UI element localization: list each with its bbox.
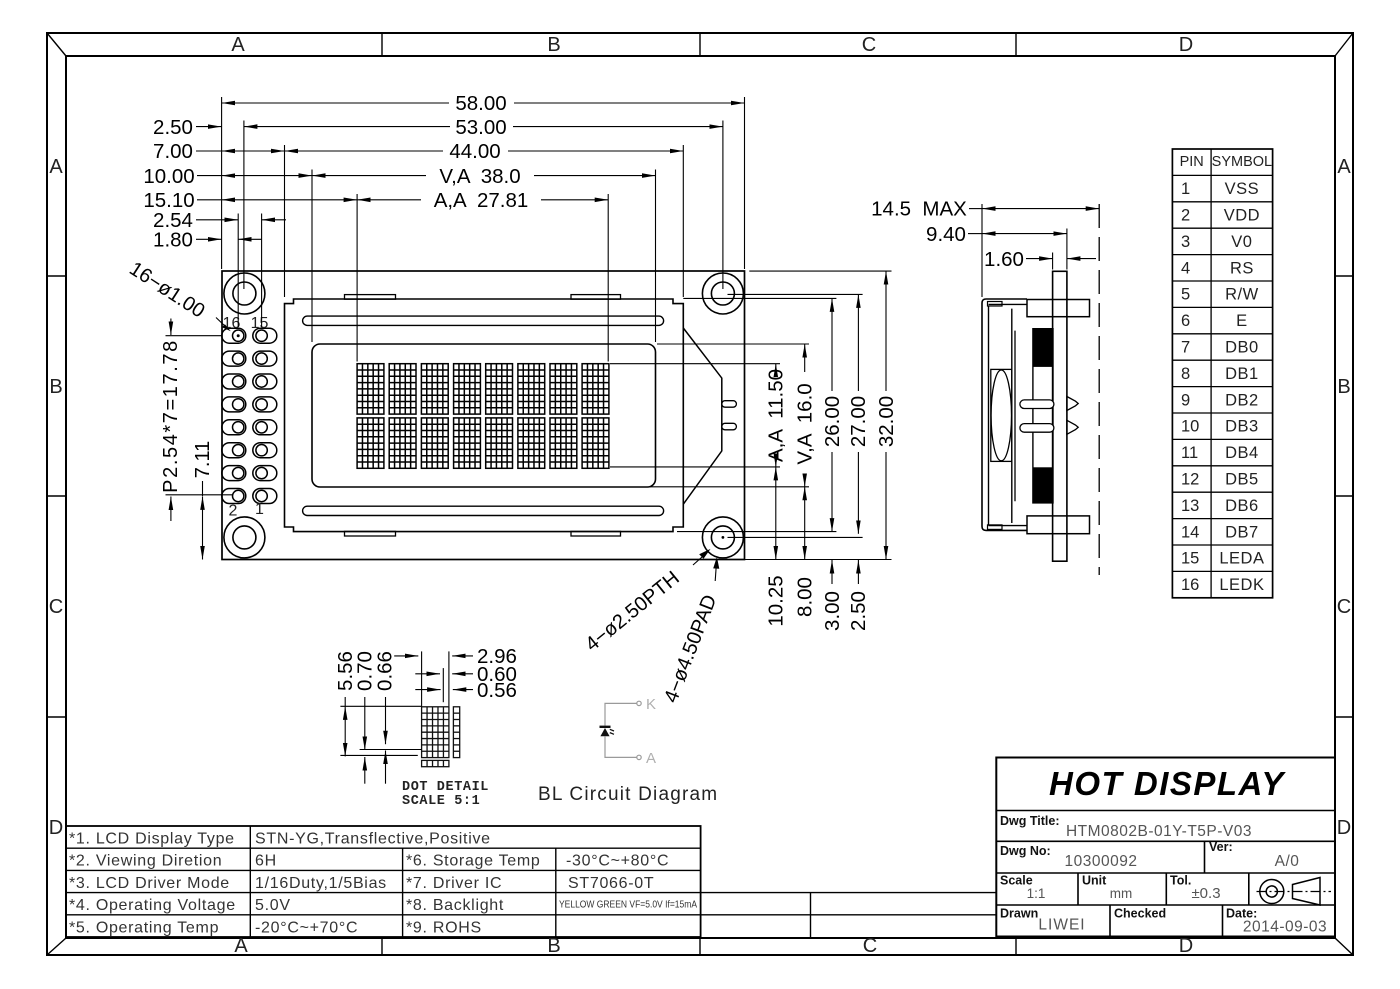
svg-text:-30°C~+80°C: -30°C~+80°C — [566, 853, 669, 870]
svg-text:58.00: 58.00 — [455, 92, 506, 115]
svg-text:*5. Operating Temp: *5. Operating Temp — [69, 919, 219, 936]
svg-text:9: 9 — [1181, 391, 1190, 409]
svg-text:A/0: A/0 — [1275, 853, 1300, 870]
svg-text:SCALE 5:1: SCALE 5:1 — [402, 794, 480, 809]
svg-text:12: 12 — [1181, 471, 1199, 489]
svg-text:2: 2 — [229, 503, 238, 520]
svg-text:14.5 MAX: 14.5 MAX — [871, 198, 967, 221]
svg-text:SYMBOL: SYMBOL — [1212, 154, 1272, 170]
svg-text:1.80: 1.80 — [153, 229, 193, 252]
svg-text:D: D — [1179, 935, 1193, 957]
svg-text:Dwg No:: Dwg No: — [1000, 844, 1051, 858]
svg-text:7: 7 — [1181, 339, 1190, 357]
svg-text:Ver:: Ver: — [1209, 840, 1233, 854]
svg-text:5: 5 — [1181, 286, 1190, 304]
svg-text:5.0V: 5.0V — [255, 897, 291, 914]
svg-text:B: B — [547, 34, 560, 56]
svg-text:14: 14 — [1181, 523, 1199, 541]
svg-text:*3. LCD Driver Mode: *3. LCD Driver Mode — [69, 875, 230, 892]
svg-text:VSS: VSS — [1225, 180, 1260, 198]
svg-text:C: C — [1337, 596, 1351, 618]
svg-text:9.40: 9.40 — [926, 223, 966, 246]
svg-text:C: C — [863, 935, 877, 957]
svg-text:10.25: 10.25 — [765, 575, 788, 626]
svg-text:Checked: Checked — [1114, 907, 1166, 921]
svg-text:A: A — [1337, 156, 1351, 178]
svg-text:RS: RS — [1230, 259, 1254, 277]
svg-text:DB7: DB7 — [1225, 523, 1259, 541]
svg-text:A,A 27.81: A,A 27.81 — [434, 189, 529, 212]
svg-text:0.56: 0.56 — [477, 679, 517, 702]
svg-text:V,A 16.0: V,A 16.0 — [794, 383, 817, 464]
svg-text:0.66: 0.66 — [374, 651, 397, 691]
svg-text:D: D — [1179, 34, 1193, 56]
svg-text:*1. LCD Display Type: *1. LCD Display Type — [69, 831, 235, 848]
svg-text:16: 16 — [1181, 576, 1199, 594]
svg-text:DB3: DB3 — [1225, 418, 1259, 436]
svg-text:P2.54*7=17.78: P2.54*7=17.78 — [160, 339, 182, 493]
svg-text:7.11: 7.11 — [192, 441, 214, 478]
svg-text:V,A 38.0: V,A 38.0 — [439, 165, 520, 188]
svg-text:4: 4 — [1181, 259, 1190, 277]
svg-text:44.00: 44.00 — [449, 140, 500, 163]
svg-text:*2. Viewing Diretion: *2. Viewing Diretion — [69, 853, 222, 870]
svg-text:A: A — [234, 935, 248, 957]
svg-text:LEDK: LEDK — [1219, 576, 1264, 594]
svg-text:DB2: DB2 — [1225, 391, 1259, 409]
svg-text:26.00: 26.00 — [821, 396, 844, 447]
svg-text:DB5: DB5 — [1225, 471, 1259, 489]
svg-text:D: D — [1337, 817, 1351, 839]
svg-text:DB1: DB1 — [1225, 365, 1259, 383]
svg-text:*7. Driver IC: *7. Driver IC — [406, 875, 502, 892]
svg-text:6H: 6H — [255, 853, 277, 870]
svg-text:10.00: 10.00 — [143, 165, 194, 188]
svg-text:13: 13 — [1181, 497, 1199, 515]
svg-text:V0: V0 — [1231, 233, 1252, 251]
svg-text:Dwg Title:: Dwg Title: — [1000, 814, 1060, 828]
svg-text:DOT DETAIL: DOT DETAIL — [402, 780, 489, 795]
svg-text:C: C — [49, 596, 63, 618]
svg-text:*4. Operating Voltage: *4. Operating Voltage — [69, 897, 236, 914]
svg-text:2014-09-03: 2014-09-03 — [1243, 919, 1327, 936]
svg-text:1: 1 — [255, 501, 264, 518]
svg-text:C: C — [862, 34, 876, 56]
svg-text:DB4: DB4 — [1225, 444, 1259, 462]
svg-text:DB6: DB6 — [1225, 497, 1259, 515]
svg-text:HTM0802B-01Y-T5P-V03: HTM0802B-01Y-T5P-V03 — [1066, 823, 1252, 840]
svg-text:10300092: 10300092 — [1065, 853, 1138, 870]
svg-text:8: 8 — [1181, 365, 1190, 383]
svg-text:R/W: R/W — [1225, 286, 1259, 304]
svg-text:*6. Storage Temp: *6. Storage Temp — [406, 853, 541, 870]
svg-text:1.60: 1.60 — [984, 248, 1024, 271]
svg-text:A,A 11.50: A,A 11.50 — [765, 369, 788, 462]
svg-text:LEDA: LEDA — [1219, 550, 1264, 568]
svg-text:15: 15 — [251, 315, 269, 332]
svg-text:LIWEI: LIWEI — [1038, 917, 1085, 934]
svg-text:ST7066-0T: ST7066-0T — [568, 875, 654, 892]
svg-text:A: A — [646, 750, 656, 767]
svg-text:E: E — [1236, 312, 1248, 330]
svg-text:8.00: 8.00 — [794, 577, 817, 617]
svg-text:K: K — [646, 696, 656, 713]
svg-text:1/16Duty,1/5Bias: 1/16Duty,1/5Bias — [255, 875, 387, 892]
svg-text:Tol.: Tol. — [1170, 874, 1191, 888]
svg-text:2: 2 — [1181, 207, 1190, 225]
svg-text:10: 10 — [1181, 418, 1199, 436]
svg-text:BL Circuit Diagram: BL Circuit Diagram — [538, 784, 718, 805]
svg-text:1:1: 1:1 — [1027, 886, 1046, 901]
svg-text:B: B — [1337, 376, 1350, 398]
svg-text:B: B — [547, 935, 560, 957]
svg-text:mm: mm — [1110, 886, 1133, 901]
svg-text:53.00: 53.00 — [455, 116, 506, 139]
svg-text:11: 11 — [1181, 444, 1198, 462]
svg-text:-20°C~+70°C: -20°C~+70°C — [255, 919, 358, 936]
svg-text:B: B — [49, 376, 62, 398]
svg-text:HOT DISPLAY: HOT DISPLAY — [1049, 765, 1286, 802]
svg-text:DB0: DB0 — [1225, 339, 1259, 357]
svg-text:PIN: PIN — [1180, 154, 1204, 170]
svg-text:±0.3: ±0.3 — [1191, 885, 1220, 902]
svg-text:27.00: 27.00 — [847, 396, 870, 447]
svg-text:6: 6 — [1181, 312, 1190, 330]
svg-text:YELLOW GREEN VF=5.0V If=15mA: YELLOW GREEN VF=5.0V If=15mA — [559, 899, 697, 911]
svg-text:VDD: VDD — [1224, 207, 1260, 225]
svg-text:STN-YG,Transflective,Positive: STN-YG,Transflective,Positive — [255, 831, 491, 848]
svg-text:Drawn: Drawn — [1000, 907, 1038, 921]
svg-text:*9. ROHS: *9. ROHS — [406, 919, 482, 936]
svg-text:7.00: 7.00 — [153, 140, 193, 163]
svg-text:*8. Backlight: *8. Backlight — [406, 897, 504, 914]
svg-text:A: A — [49, 156, 63, 178]
svg-text:2.50: 2.50 — [153, 116, 193, 139]
svg-text:D: D — [49, 817, 63, 839]
svg-text:2.50: 2.50 — [847, 591, 870, 631]
svg-text:15: 15 — [1181, 550, 1199, 568]
svg-text:A: A — [231, 34, 245, 56]
svg-text:3: 3 — [1181, 233, 1190, 251]
svg-text:3.00: 3.00 — [821, 591, 844, 631]
svg-text:1: 1 — [1181, 180, 1190, 198]
svg-text:Unit: Unit — [1082, 874, 1107, 888]
svg-text:32.00: 32.00 — [875, 396, 898, 447]
